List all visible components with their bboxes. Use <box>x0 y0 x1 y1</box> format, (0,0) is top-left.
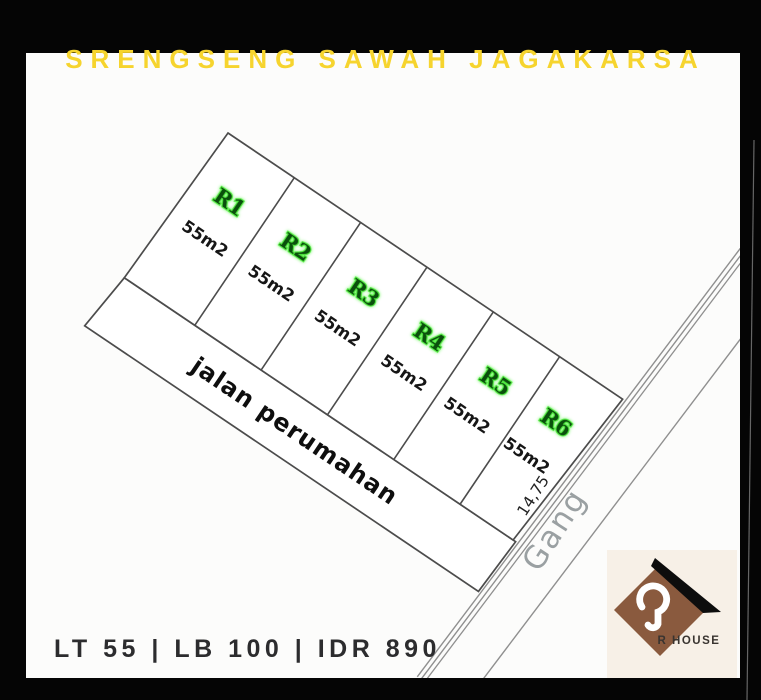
logo-mark <box>607 550 737 678</box>
specs-line: LT 55 | LB 100 | IDR 890 <box>54 635 441 664</box>
logo-wordmark: R HOUSE <box>639 635 739 647</box>
location-title: SRENGSENG SAWAH JAGAKARSA <box>30 44 741 75</box>
photo-edge-line <box>747 140 754 700</box>
flyer-photo: R1 R2 R3 R4 R5 R6 55m2 55m2 55m2 55m2 55… <box>0 0 761 700</box>
stray-tick-line <box>711 6 725 36</box>
logo-card: R HOUSE <box>607 550 737 678</box>
